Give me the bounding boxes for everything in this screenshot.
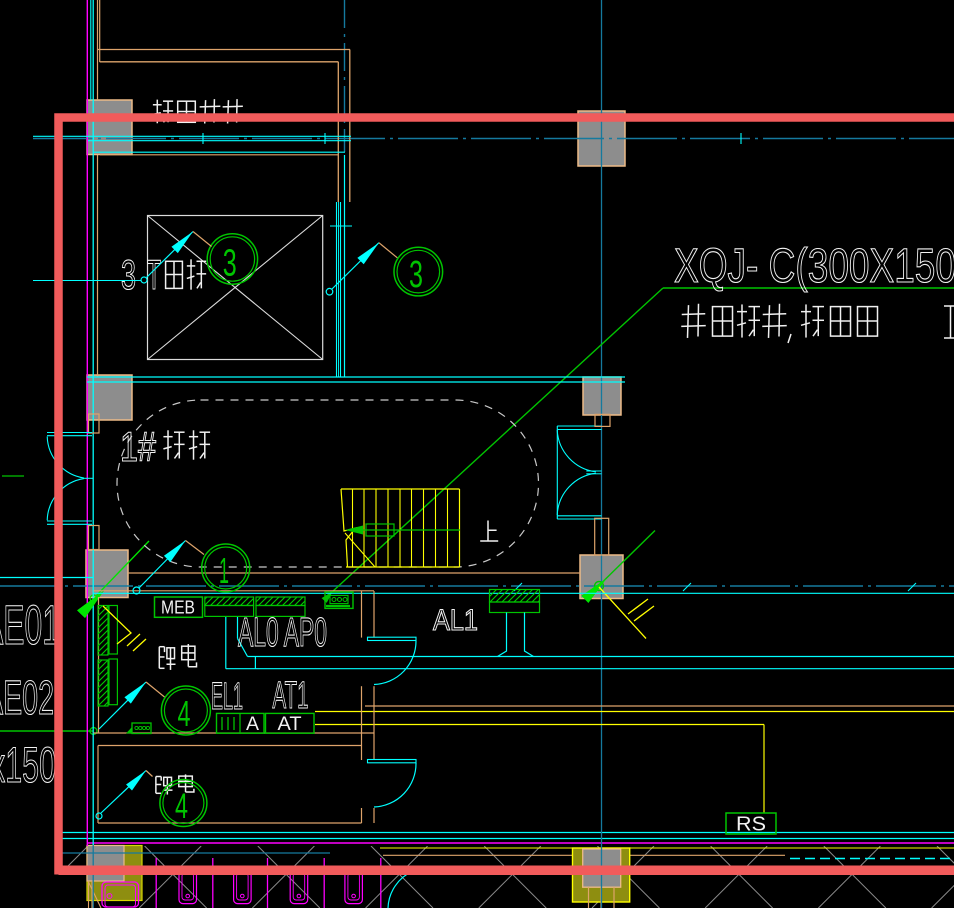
svg-text:4: 4 bbox=[175, 787, 188, 826]
svg-text:AL1: AL1 bbox=[433, 604, 478, 637]
svg-text:AE01: AE01 bbox=[0, 593, 60, 656]
svg-text:1: 1 bbox=[219, 550, 229, 591]
svg-text:RS: RS bbox=[736, 814, 766, 836]
svg-text:AT1: AT1 bbox=[273, 675, 309, 717]
svg-text:EL1: EL1 bbox=[211, 676, 243, 718]
svg-text:3: 3 bbox=[223, 243, 237, 285]
svg-text:4: 4 bbox=[178, 693, 191, 734]
svg-text:AT: AT bbox=[278, 713, 302, 735]
svg-text:1#: 1# bbox=[120, 423, 156, 470]
svg-text:AE02: AE02 bbox=[0, 672, 54, 725]
svg-text:3: 3 bbox=[409, 254, 423, 296]
svg-text:x150: x150 bbox=[0, 737, 56, 793]
svg-text:XQJ- C(300X150: XQJ- C(300X150 bbox=[674, 240, 954, 293]
svg-text:AL0 AP0: AL0 AP0 bbox=[238, 609, 327, 655]
svg-text:3: 3 bbox=[121, 251, 136, 298]
svg-text:MEB: MEB bbox=[161, 598, 195, 618]
svg-text:A: A bbox=[246, 713, 259, 735]
